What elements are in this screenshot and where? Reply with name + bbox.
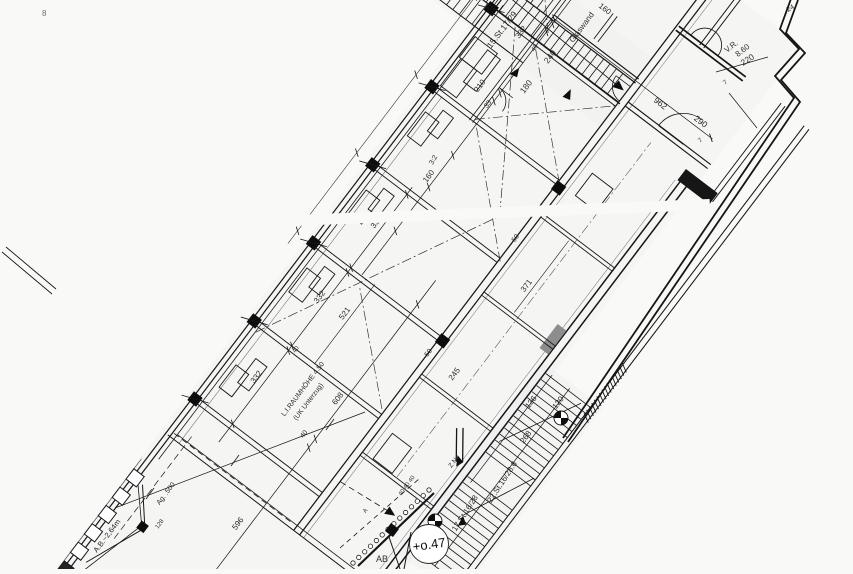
svg-text:AB: AB — [376, 554, 388, 564]
svg-text:8: 8 — [42, 9, 47, 18]
